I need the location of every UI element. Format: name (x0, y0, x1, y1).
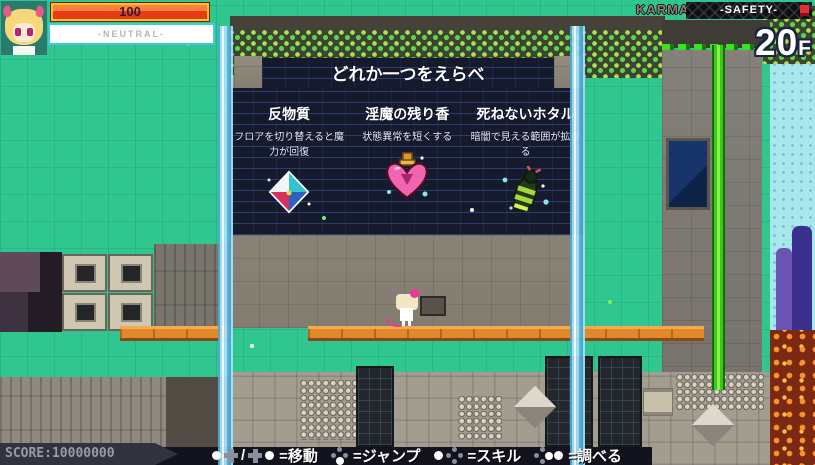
karma-mode-bar: -SAFETY- (686, 2, 812, 19)
choice-item-name: 死ねないホタル (466, 104, 584, 124)
sparkle-particle (322, 216, 326, 220)
jump-control-hint: =ジャンプ (331, 445, 421, 465)
speaker-box-large (545, 356, 593, 447)
karma-flag-icon (800, 5, 809, 16)
face-buttons-icon (446, 447, 463, 464)
player-bow (410, 289, 419, 298)
stud-tiles-2 (458, 396, 502, 440)
floor-number: 20 (755, 22, 798, 63)
stud-tiles-1 (300, 380, 356, 440)
green-pipe (712, 45, 725, 390)
lava-wall (770, 330, 815, 465)
player-character (396, 292, 426, 327)
stick-button-icon (265, 451, 274, 460)
hp-value: 100 (119, 4, 141, 19)
karma-label: KARMA (636, 2, 689, 17)
game-screen: 反物質 フロアを切り替えると魔力が回復 淫魔の残り香 (0, 0, 815, 465)
karma-mode-label: -SAFETY- (720, 4, 778, 16)
background-crystal-blue (792, 226, 812, 332)
portrait-eye-right (27, 28, 33, 36)
player-body (400, 308, 413, 321)
hp-bar: 100 (50, 2, 210, 22)
speaker-box-small (598, 356, 642, 447)
choice-item-description: フロアを切り替えると魔力が回復 (230, 128, 348, 158)
sparkle-particle (608, 300, 612, 304)
stone-block-left (234, 56, 262, 90)
choice-item-succubus-scent[interactable]: 淫魔の残り香 状態異常を短くする (348, 102, 466, 218)
doorway-block-2 (0, 292, 28, 332)
status-bar: -NEUTRAL- (48, 23, 215, 45)
wooden-platform-main (308, 326, 704, 341)
slash-separator: / (241, 447, 245, 464)
waterfall-right (570, 26, 585, 465)
choice-item-immortal-firefly[interactable]: 死ねないホタル 暗闇で見える範囲が拡がる (466, 102, 584, 218)
choice-item-antimatter[interactable]: 反物質 フロアを切り替えると魔力が回復 (230, 102, 348, 218)
choice-item-name: 淫魔の残り香 (348, 104, 466, 124)
dpad-icon (248, 449, 262, 463)
floor-suffix: F (798, 37, 811, 60)
speaker-column (356, 366, 394, 447)
dpad-icon (224, 449, 238, 463)
stick-button-icon (212, 451, 221, 460)
status-label: -NEUTRAL- (98, 29, 165, 39)
sparkle-particle (250, 344, 254, 348)
move-label: =移動 (279, 445, 318, 465)
skill-label: =スキル (468, 445, 522, 465)
background-crystal-purple (776, 248, 792, 332)
floor-indicator: 20F (755, 22, 811, 64)
player-leg (402, 321, 405, 326)
examine-label: =調べる (568, 445, 622, 465)
heart-perfume-icon (348, 151, 466, 203)
antimatter-prism-icon (230, 166, 348, 218)
portrait-eye-left (15, 28, 21, 36)
examine-control-hint: =調べる (534, 445, 622, 465)
sign-plaque (643, 388, 673, 416)
player-portrait (1, 1, 47, 55)
face-buttons-right-icon (534, 447, 551, 464)
wooden-platform-left (120, 326, 230, 341)
stick-button-icon (554, 451, 563, 460)
skill-control-hint: =スキル (434, 445, 522, 465)
crate (108, 254, 153, 292)
move-control-hint: / =移動 (212, 445, 318, 465)
doorway-block-1 (0, 252, 40, 292)
choice-panel-title: どれか一つをえらべ (262, 62, 554, 88)
stick-button-icon (434, 451, 443, 460)
choice-item-description: 暗闇で見える範囲が拡がる (466, 128, 584, 158)
choice-item-description: 状態異常を短くする (348, 128, 466, 143)
immortal-firefly-icon (466, 166, 584, 218)
score-label: SCORE:10000000 (5, 446, 115, 461)
player-leg (408, 321, 411, 326)
waterfall-left (218, 26, 233, 465)
portrait-horn-right (35, 5, 46, 18)
tower-window (666, 138, 710, 210)
controls-hint-row: / =移動 =ジャンプ =スキル =調べる (212, 446, 652, 465)
score-banner: SCORE:10000000 (0, 443, 178, 465)
choice-item-name: 反物質 (230, 104, 348, 124)
portrait-collar (13, 46, 35, 55)
face-buttons-bottom-icon (331, 447, 348, 464)
crate (62, 293, 107, 331)
jump-label: =ジャンプ (353, 445, 421, 465)
choice-panel: 反物質 フロアを切り替えると魔力が回復 淫魔の残り香 (230, 88, 585, 235)
sparkle-particle (470, 208, 474, 212)
crate (62, 254, 107, 292)
